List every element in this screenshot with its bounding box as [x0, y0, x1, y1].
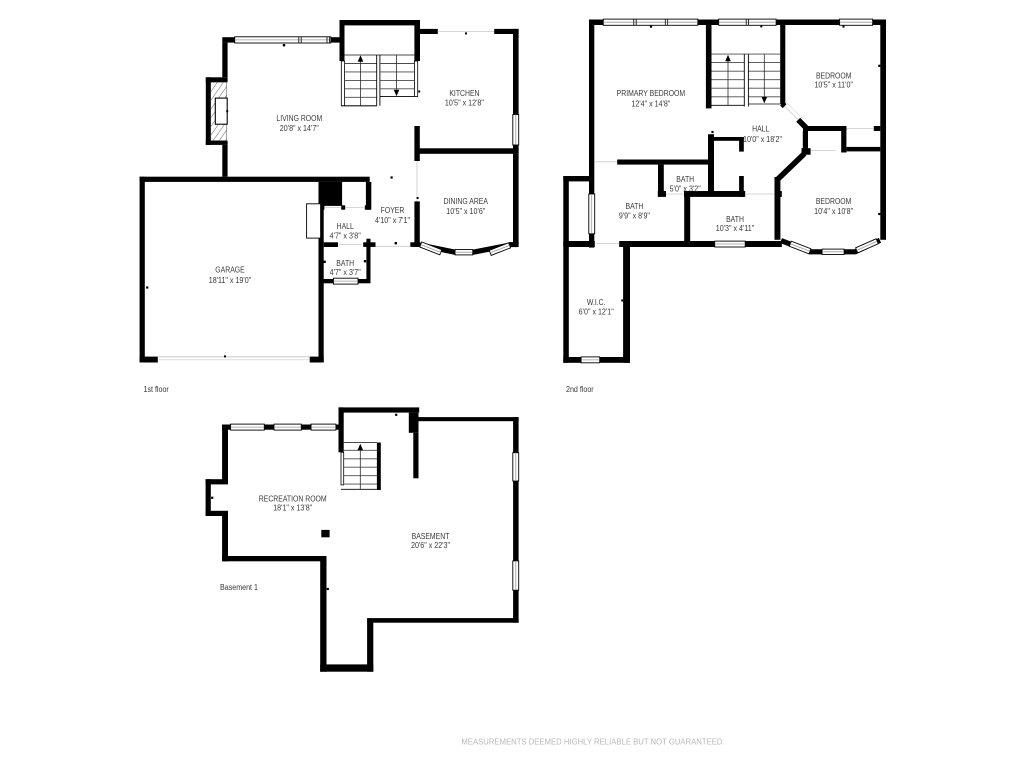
svg-text:4'7" x 3'7": 4'7" x 3'7"	[330, 268, 361, 278]
svg-text:10'3" x 4'11": 10'3" x 4'11"	[716, 224, 755, 234]
svg-text:18'1" x 13'8": 18'1" x 13'8"	[273, 503, 312, 513]
svg-text:MEASUREMENTS DEEMED HIGHLY REL: MEASUREMENTS DEEMED HIGHLY RELIABLE BUT …	[461, 737, 724, 746]
svg-text:KITCHEN: KITCHEN	[449, 88, 479, 98]
svg-text:HALL: HALL	[337, 221, 354, 231]
svg-text:10'4" x 10'8": 10'4" x 10'8"	[814, 207, 853, 217]
svg-text:4'10" x 7'1": 4'10" x 7'1"	[375, 215, 410, 225]
svg-text:BATH: BATH	[336, 258, 354, 268]
svg-text:BASEMENT: BASEMENT	[412, 531, 450, 541]
svg-text:10'5" x 11'0": 10'5" x 11'0"	[814, 80, 853, 90]
svg-text:6'0" x 12'1": 6'0" x 12'1"	[579, 307, 614, 317]
svg-text:12'4" x 14'8": 12'4" x 14'8"	[631, 99, 670, 109]
svg-text:4'7" x 3'8": 4'7" x 3'8"	[330, 231, 361, 241]
svg-text:BATH: BATH	[625, 202, 643, 212]
svg-text:10'5" x 10'6": 10'5" x 10'6"	[446, 207, 485, 217]
svg-text:W.I.C.: W.I.C.	[587, 297, 606, 307]
svg-text:5'0" x 3'2": 5'0" x 3'2"	[670, 184, 701, 194]
svg-text:GARAGE: GARAGE	[215, 265, 244, 275]
svg-text:BEDROOM: BEDROOM	[816, 196, 852, 206]
svg-text:BATH: BATH	[676, 174, 694, 184]
svg-text:18'11" x 19'0": 18'11" x 19'0"	[209, 276, 252, 286]
svg-text:9'9" x 8'9": 9'9" x 8'9"	[619, 211, 650, 221]
svg-text:PRIMARY BEDROOM: PRIMARY BEDROOM	[617, 89, 685, 99]
svg-text:2nd floor: 2nd floor	[566, 385, 594, 395]
svg-text:20'8" x 14'7": 20'8" x 14'7"	[280, 123, 319, 133]
svg-text:20'6" x 22'3": 20'6" x 22'3"	[411, 541, 450, 551]
svg-text:BATH: BATH	[726, 214, 744, 224]
svg-text:LIVING ROOM: LIVING ROOM	[276, 114, 322, 124]
svg-text:10'0" x 18'2": 10'0" x 18'2"	[743, 134, 782, 144]
svg-text:FOYER: FOYER	[381, 206, 405, 216]
svg-text:1st floor: 1st floor	[144, 385, 170, 395]
svg-text:DINING AREA: DINING AREA	[444, 197, 488, 207]
svg-text:10'5" x 12'8": 10'5" x 12'8"	[445, 98, 484, 108]
svg-text:Basement 1: Basement 1	[220, 583, 258, 593]
svg-text:HALL: HALL	[752, 124, 769, 134]
